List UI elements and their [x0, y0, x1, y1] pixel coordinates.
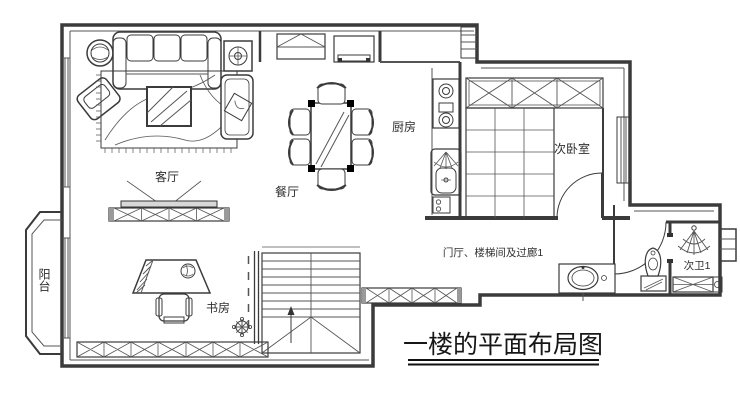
- coffee-table: [147, 87, 191, 126]
- sofa: [113, 32, 221, 89]
- living-room-furniture: [75, 32, 253, 221]
- plan-title: 一楼的平面布局图: [403, 331, 603, 359]
- kitchen-unit: [433, 197, 450, 213]
- label-bedroom: 次卧室: [554, 141, 590, 156]
- desk: [133, 260, 210, 293]
- desk-chair: [156, 294, 192, 323]
- label-kitchen: 厨房: [392, 119, 416, 134]
- toilet: [641, 248, 666, 291]
- shower-icon: [678, 226, 710, 255]
- top-cabinet: [277, 34, 325, 59]
- bedroom-door: [557, 173, 602, 218]
- bathroom-window: [720, 229, 736, 261]
- floor-plan-page: 阳台: [0, 0, 740, 400]
- dining-table: [308, 100, 354, 172]
- floor-plan-canvas: 阳台: [0, 0, 740, 400]
- plant-pot: [87, 40, 113, 66]
- label-bathroom: 次卫1: [684, 259, 711, 272]
- stairs: [262, 247, 360, 353]
- bathroom-cabinet: [673, 277, 722, 292]
- sink: [431, 149, 461, 195]
- dining-room-furniture: [277, 34, 374, 190]
- sideboard: [334, 36, 374, 62]
- plan-title-block: 一楼的平面布局图: [403, 331, 603, 365]
- label-living-room: 客厅: [155, 169, 179, 184]
- tv: [121, 201, 217, 207]
- label-dining-room: 餐厅: [275, 184, 299, 199]
- kitchen-fixtures: [431, 68, 461, 215]
- label-balcony: 阳台: [37, 268, 51, 292]
- bed: [466, 108, 554, 218]
- study-cabinet: [77, 342, 268, 357]
- stove: [433, 79, 459, 128]
- stairs-up-arrow: [288, 306, 295, 343]
- tv-stand: [109, 208, 229, 221]
- side-table-lamp: [224, 41, 252, 71]
- hallway-cabinet: [362, 288, 461, 303]
- study-furniture: [77, 260, 268, 357]
- label-study: 书房: [206, 300, 230, 315]
- chaise: [221, 75, 253, 139]
- wardrobe: [466, 78, 603, 108]
- label-hallway: 门厅、楼梯间及过廊1: [443, 246, 543, 259]
